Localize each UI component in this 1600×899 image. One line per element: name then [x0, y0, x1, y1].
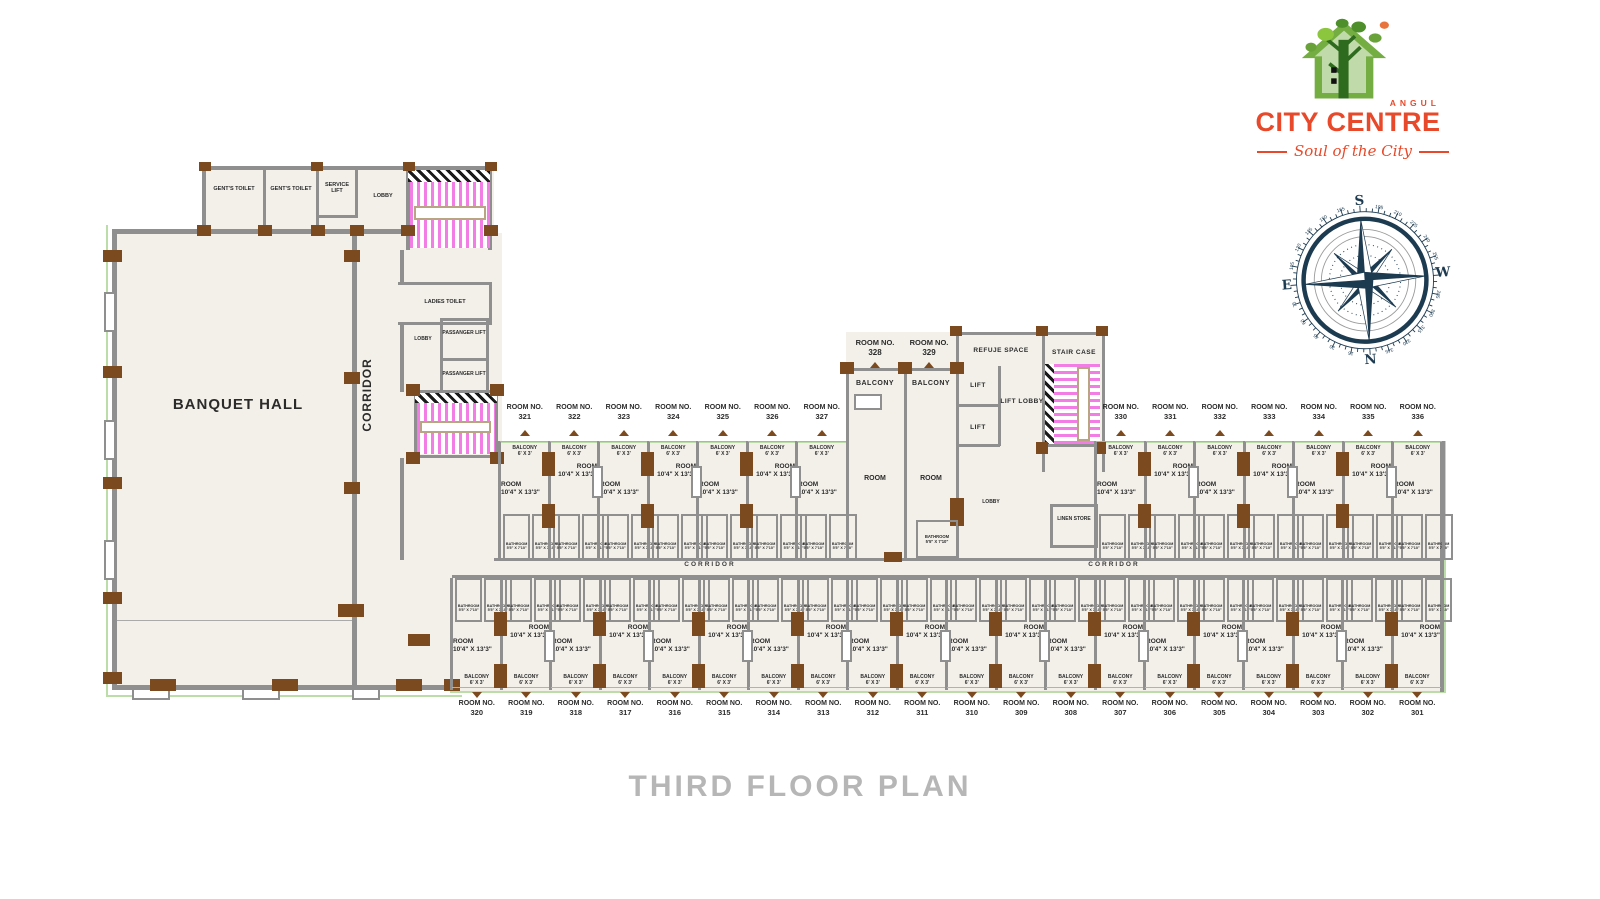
room-unit-330: ROOM NO. 330 BALCONY 6' X 3' ROOM 10'4" … — [1096, 404, 1146, 560]
bathroom-label: BATHROOM 5'5" X 7'10" — [1425, 578, 1452, 622]
banquet-hall-label: BANQUET HALL — [126, 396, 350, 413]
window — [1287, 466, 1298, 498]
bathroom-label: BATHROOM 5'5" X 7'10" — [1049, 578, 1076, 622]
column — [1088, 612, 1101, 636]
balcony-label: BALCONY 6' X 3' — [799, 670, 849, 688]
bathroom-label: BATHROOM 5'5" X 7'10" — [505, 578, 532, 622]
window — [592, 466, 603, 498]
bathroom-pair: BATHROOM 5'5" X 7'10" BATHROOM 5'5" X 7'… — [997, 578, 1047, 622]
room-number: ROOM NO. 336 — [1385, 404, 1451, 421]
marker-icon — [1363, 430, 1373, 436]
column — [989, 664, 1002, 688]
balcony-label: BALCONY 6' X 3' — [700, 670, 750, 688]
lift-lobby-label: LIFT LOBBY — [1000, 398, 1044, 405]
room-number: ROOM NO.329 — [904, 338, 954, 357]
column — [593, 664, 606, 688]
bathroom-label: BATHROOM 5'5" X 7'10" — [1247, 578, 1274, 622]
bathroom-label: BATHROOM 5'5" X 7'10" — [1346, 578, 1373, 622]
column — [791, 664, 804, 688]
balcony-label: BALCONY 6' X 3' — [1195, 670, 1245, 688]
room-unit-327: ROOM NO. 327 BALCONY 6' X 3' ROOM 10'4" … — [797, 404, 847, 560]
floor-plan: GENT'S TOILET GENT'S TOILET SERVICE LIFT… — [0, 0, 1600, 899]
balcony-label: BALCONY 6' X 3' — [649, 441, 699, 459]
column — [740, 452, 753, 476]
bathroom-label: BATHROOM 5'5" X 7'10" — [703, 578, 730, 622]
marker-icon — [868, 692, 878, 698]
marker-icon — [670, 692, 680, 698]
bathroom-label: BATHROOM 5'5" X 7'10" — [1000, 578, 1027, 622]
corridor-label-right: CORRIDOR — [1064, 561, 1164, 568]
column — [593, 612, 606, 636]
bathroom-label: BATHROOM 5'5" X 7'10" — [1198, 578, 1225, 622]
bathroom-label: BATHROOM 5'5" X 7'10" — [1396, 514, 1423, 560]
passanger-lift-2-label: PASSANGER LIFT — [442, 372, 486, 378]
bathroom-pair: BATHROOM 5'5" X 7'10" BATHROOM 5'5" X 7'… — [700, 578, 750, 622]
balcony-label: BALCONY 6' X 3' — [997, 670, 1047, 688]
balcony-label: BALCONY 6' X 3' — [1344, 441, 1394, 459]
bathroom-label: BATHROOM 5'5" X 7'10" — [1297, 578, 1324, 622]
balcony-label: BALCONY 6' X 3' — [1393, 441, 1443, 459]
lift-1-label: LIFT — [958, 382, 998, 389]
bathroom-pair: BATHROOM 5'5" X 7'10" BATHROOM 5'5" X 7'… — [1393, 578, 1443, 622]
refuje-space-label: REFUJE SPACE — [958, 347, 1044, 354]
column — [1286, 612, 1299, 636]
passanger-lift-1-label: PASSANGER LIFT — [442, 331, 486, 337]
marker-icon — [1412, 692, 1422, 698]
room-row-330-336: ROOM NO. 330 BALCONY 6' X 3' ROOM 10'4" … — [1096, 404, 1443, 560]
bathroom-label: BATHROOM 5'5" X 7'10" — [602, 514, 629, 560]
room-number: ROOM NO. 301 — [1385, 700, 1451, 717]
marker-icon — [1215, 430, 1225, 436]
marker-icon — [1314, 430, 1324, 436]
bathroom-label: BATHROOM 5'5" X 7'10" — [1148, 578, 1175, 622]
bathroom-label: BATHROOM 5'5" X 7'10" — [800, 514, 827, 560]
marker-icon — [571, 692, 581, 698]
marker-icon — [1165, 692, 1175, 698]
balcony-label: BALCONY 6' X 3' — [1393, 670, 1443, 688]
bathroom-pair: BATHROOM 5'5" X 7'10" BATHROOM 5'5" X 7'… — [502, 578, 552, 622]
marker-icon — [620, 692, 630, 698]
room-label: ROOM 10'4" X 13'3" — [1393, 622, 1443, 670]
marker-icon — [1363, 692, 1373, 698]
marker-icon — [1313, 692, 1323, 698]
room-label: ROOM 10'4" X 13'3" — [797, 461, 847, 514]
column — [692, 664, 705, 688]
balcony-label: BALCONY — [904, 380, 958, 387]
marker-icon — [1165, 430, 1175, 436]
window — [940, 630, 951, 662]
column — [1385, 612, 1398, 636]
balcony-label: BALCONY 6' X 3' — [748, 441, 798, 459]
marker-icon — [718, 430, 728, 436]
bathroom-label: BATHROOM 5'5" X 7'10" — [701, 514, 728, 560]
bathroom-pair: BATHROOM 5'5" X 7'10" BATHROOM 5'5" X 7'… — [1344, 514, 1394, 560]
column — [791, 612, 804, 636]
column — [1286, 664, 1299, 688]
room-row-321-327: ROOM NO. 321 BALCONY 6' X 3' ROOM 10'4" … — [500, 404, 847, 560]
column — [641, 504, 654, 528]
marker-icon — [569, 430, 579, 436]
column — [1187, 664, 1200, 688]
third-floor-plan-page: ANGUL CITY CENTRE Soul of the City SNEW1… — [0, 0, 1600, 899]
window — [544, 630, 555, 662]
bathroom-label: BATHROOM 5'5" X 7'10" — [652, 514, 679, 560]
service-lift-label: SERVICE LIFT — [320, 182, 354, 195]
marker-icon — [668, 430, 678, 436]
marker-icon — [1016, 692, 1026, 698]
bathroom-pair: BATHROOM 5'5" X 7'10" BATHROOM 5'5" X 7'… — [799, 578, 849, 622]
window — [1188, 466, 1199, 498]
bathroom-label: BATHROOM 5'5" X 7'10" — [1347, 514, 1374, 560]
ladies-toilet-label: LADIES TOILET — [400, 299, 490, 305]
column — [1138, 504, 1151, 528]
bathroom-pair: BATHROOM 5'5" X 7'10" BATHROOM 5'5" X 7'… — [898, 578, 948, 622]
bathroom-pair: BATHROOM 5'5" X 7'10" BATHROOM 5'5" X 7'… — [748, 514, 798, 560]
marker-icon — [520, 430, 530, 436]
bathroom-pair: BATHROOM 5'5" X 7'10" BATHROOM 5'5" X 7'… — [1294, 578, 1344, 622]
bathroom-pair: BATHROOM 5'5" X 7'10" BATHROOM 5'5" X 7'… — [550, 514, 600, 560]
bathroom-pair: BATHROOM 5'5" X 7'10" BATHROOM 5'5" X 7'… — [797, 514, 847, 560]
bathroom-label: BATHROOM 5'5" X 7'10" — [1297, 514, 1324, 560]
room-label: ROOM — [904, 475, 958, 482]
room-row-301-320: ROOM NO. 320 BALCONY 6' X 3' ROOM 10'4" … — [452, 578, 1442, 724]
balcony-label: BALCONY 6' X 3' — [1096, 670, 1146, 688]
column — [641, 452, 654, 476]
window — [1336, 630, 1347, 662]
balcony-label: BALCONY 6' X 3' — [502, 670, 552, 688]
room-unit-328-329: ROOM NO.328 ROOM NO.329 BALCONY ROOM BAL… — [846, 338, 958, 560]
marker-icon — [767, 430, 777, 436]
lobby-top-label: LOBBY — [360, 193, 406, 199]
column — [1088, 664, 1101, 688]
lobby-small-label: LOBBY — [404, 337, 442, 343]
marker-icon — [1115, 692, 1125, 698]
column — [1336, 504, 1349, 528]
column — [542, 504, 555, 528]
window — [643, 630, 654, 662]
bathroom-label: BATHROOM 5'5" X 7'10" — [1396, 578, 1423, 622]
window — [1138, 630, 1149, 662]
room-unit-325: ROOM NO. 325 BALCONY 6' X 3' ROOM 10'4" … — [698, 404, 748, 560]
corridor-vertical-label: CORRIDOR — [361, 340, 375, 450]
column — [1336, 452, 1349, 476]
bathroom-label: BATHROOM 5'5" X 7'10" — [1099, 514, 1126, 560]
bathroom-pair: BATHROOM 5'5" X 7'10" BATHROOM 5'5" X 7'… — [1393, 514, 1443, 560]
plan-title: THIRD FLOOR PLAN — [629, 770, 972, 804]
bathroom-pair: BATHROOM 5'5" X 7'10" BATHROOM 5'5" X 7'… — [601, 578, 651, 622]
bathroom-label: BATHROOM 5'5" X 7'10" — [901, 578, 928, 622]
bathroom-label: BATHROOM 5'5" X 7'10" — [851, 578, 878, 622]
marker-icon — [967, 692, 977, 698]
room-unit-301: ROOM NO. 301 BALCONY 6' X 3' ROOM 10'4" … — [1393, 578, 1443, 724]
window — [1039, 630, 1050, 662]
window — [841, 630, 852, 662]
column — [542, 452, 555, 476]
balcony-label: BALCONY 6' X 3' — [601, 670, 651, 688]
marker-icon — [924, 362, 934, 368]
column — [1237, 452, 1250, 476]
marker-icon — [521, 692, 531, 698]
bathroom-pair: BATHROOM 5'5" X 7'10" BATHROOM 5'5" X 7'… — [1096, 578, 1146, 622]
room-number: ROOM NO.328 — [846, 338, 904, 357]
bathroom-label: BATHROOM 5'5" X 7'10" — [950, 578, 977, 622]
column — [1138, 452, 1151, 476]
bathroom-pair: BATHROOM 5'5" X 7'10" BATHROOM 5'5" X 7'… — [1245, 514, 1295, 560]
lobby-mid-label: LOBBY — [966, 500, 1016, 506]
gents-toilet-1-label: GENT'S TOILET — [205, 186, 263, 192]
room-unit-332: ROOM NO. 332 BALCONY 6' X 3' ROOM 10'4" … — [1195, 404, 1245, 560]
marker-icon — [1413, 430, 1423, 436]
bathroom-label: BATHROOM 5'5" X 7'10" — [604, 578, 631, 622]
marker-icon — [472, 692, 482, 698]
marker-icon — [1264, 430, 1274, 436]
balcony-label: BALCONY 6' X 3' — [1294, 670, 1344, 688]
column — [989, 612, 1002, 636]
balcony-label: BALCONY 6' X 3' — [550, 441, 600, 459]
room-329: BALCONY ROOM — [904, 370, 958, 560]
bathroom-label: BATHROOM 5'5" X 7'10" — [802, 578, 829, 622]
bathroom-label: BATHROOM 5'5" X 7'10" — [503, 514, 530, 560]
lift-2-label: LIFT — [958, 424, 998, 431]
room-label: ROOM 10'4" X 13'3" — [1393, 461, 1443, 514]
corridor-label-left: CORRIDOR — [660, 561, 760, 568]
bathroom-pair: BATHROOM 5'5" X 7'10" BATHROOM 5'5" X 7'… — [649, 514, 699, 560]
balcony-label: BALCONY 6' X 3' — [797, 441, 847, 459]
marker-icon — [817, 430, 827, 436]
balcony-label: BALCONY 6' X 3' — [898, 670, 948, 688]
marker-icon — [1214, 692, 1224, 698]
room-unit-334: ROOM NO. 334 BALCONY 6' X 3' ROOM 10'4" … — [1294, 404, 1344, 560]
marker-icon — [719, 692, 729, 698]
bathroom-pair: BATHROOM 5'5" X 7'10" BATHROOM 5'5" X 7'… — [1146, 514, 1196, 560]
column — [890, 664, 903, 688]
bathroom-label: BATHROOM 5'5" X 7'10" — [1198, 514, 1225, 560]
window — [1386, 466, 1397, 498]
marker-icon — [619, 430, 629, 436]
marker-icon — [1264, 692, 1274, 698]
bathroom-label: BATHROOM 5'5" X 7'10" — [653, 578, 680, 622]
balcony-label: BALCONY — [846, 380, 904, 387]
window — [1237, 630, 1248, 662]
marker-icon — [769, 692, 779, 698]
room-unit-323: ROOM NO. 323 BALCONY 6' X 3' ROOM 10'4" … — [599, 404, 649, 560]
marker-icon — [818, 692, 828, 698]
column — [1187, 612, 1200, 636]
bathroom-label: BATHROOM 5'5" X 7'10" — [751, 514, 778, 560]
column — [1385, 664, 1398, 688]
stair-case-label: STAIR CASE — [1044, 349, 1104, 356]
marker-icon — [1066, 692, 1076, 698]
bathroom-label: BATHROOM 5'5" X 7'10" — [553, 514, 580, 560]
bathroom-label: BATHROOM 5'5" X 7'10" — [1099, 578, 1126, 622]
window — [691, 466, 702, 498]
marker-icon — [917, 692, 927, 698]
balcony-label: BALCONY 6' X 3' — [1245, 441, 1295, 459]
bathroom-label: BATHROOM 5'5" X 7'10" — [752, 578, 779, 622]
room-number: ROOM NO. 327 — [789, 404, 855, 421]
bathroom-label: BATHROOM 5'5" X 7'10" — [455, 578, 482, 622]
column — [494, 612, 507, 636]
bathroom-label: BATHROOM 5'5" X 7'10" — [1248, 514, 1275, 560]
bathroom-label: BATHROOM 5'5" X 7'10" — [554, 578, 581, 622]
room-label: ROOM — [846, 475, 904, 482]
marker-icon — [1116, 430, 1126, 436]
window — [742, 630, 753, 662]
room-unit-321: ROOM NO. 321 BALCONY 6' X 3' ROOM 10'4" … — [500, 404, 550, 560]
bathroom-label: BATHROOM 5'5" X 7'10" — [829, 514, 856, 560]
column — [692, 612, 705, 636]
bathroom-pair: BATHROOM 5'5" X 7'10" BATHROOM 5'5" X 7'… — [1195, 578, 1245, 622]
column — [1237, 504, 1250, 528]
column — [494, 664, 507, 688]
column — [740, 504, 753, 528]
gents-toilet-2-label: GENT'S TOILET — [266, 186, 316, 192]
bathroom-label: BATHROOM 5'5" X 7'10" — [1149, 514, 1176, 560]
room-unit-336: ROOM NO. 336 BALCONY 6' X 3' ROOM 10'4" … — [1393, 404, 1443, 560]
bathroom-label: BATHROOM 5'5" X 7'10" — [1425, 514, 1452, 560]
window — [790, 466, 801, 498]
balcony-label: BALCONY 6' X 3' — [1146, 441, 1196, 459]
column — [890, 612, 903, 636]
linen-store-label: LINEN STORE — [1054, 517, 1094, 523]
marker-icon — [870, 362, 880, 368]
